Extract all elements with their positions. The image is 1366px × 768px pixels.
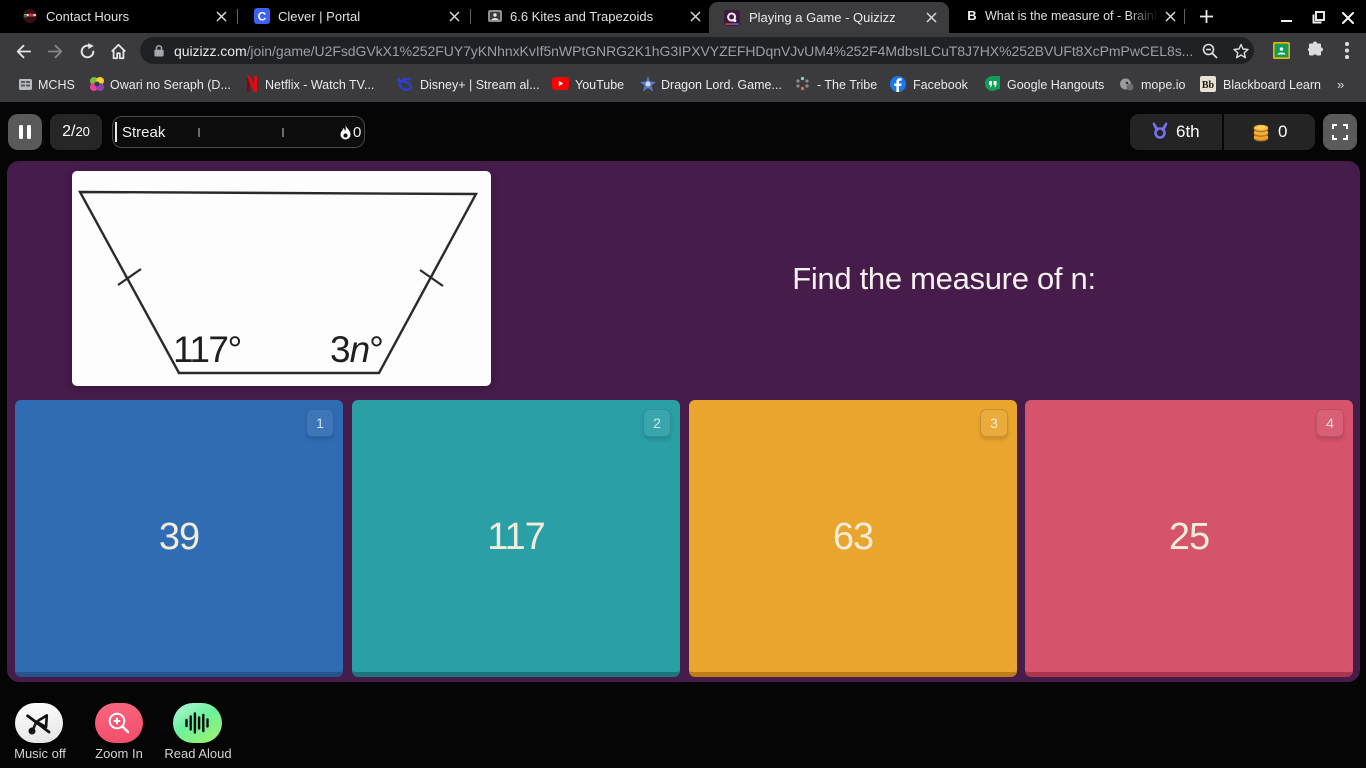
svg-text:C: C: [258, 10, 267, 24]
svg-text:117°: 117°: [173, 329, 241, 370]
svg-text:Bb: Bb: [1202, 80, 1215, 91]
svg-text:3n°: 3n°: [330, 329, 383, 370]
